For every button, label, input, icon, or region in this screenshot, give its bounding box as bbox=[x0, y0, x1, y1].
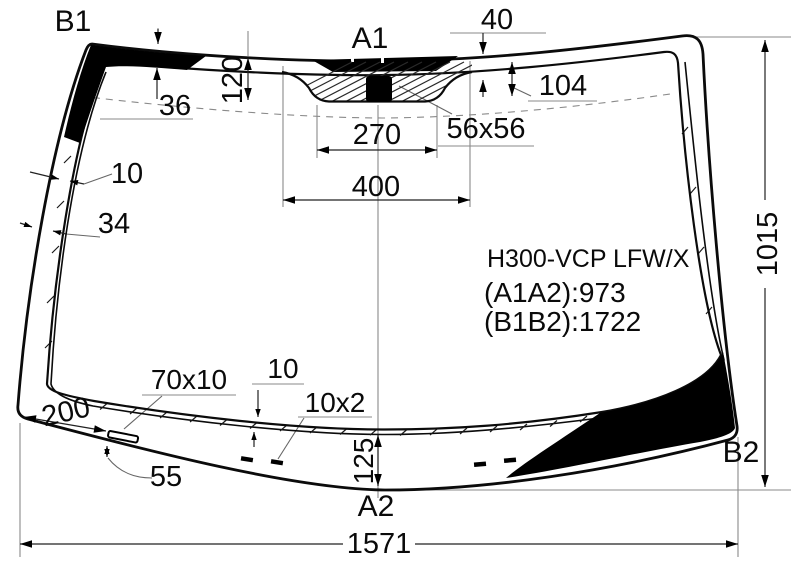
label-b2: B2 bbox=[723, 436, 760, 469]
dimension-lines bbox=[20, 29, 765, 544]
dim-34-arrow-1 bbox=[20, 223, 32, 227]
b1b2-distance-text: (B1B2):1722 bbox=[484, 306, 641, 337]
dim-10-left-text: 10 bbox=[111, 158, 143, 190]
dim-55-text: 55 bbox=[150, 461, 182, 493]
dim-40-text: 40 bbox=[481, 4, 513, 36]
dim-1571-text: 1571 bbox=[347, 528, 412, 560]
model-code-text: H300-VCP LFW/X bbox=[487, 245, 690, 273]
band-notch-2 bbox=[381, 57, 384, 63]
dim-400-text: 400 bbox=[352, 171, 400, 203]
clip-mark-4 bbox=[504, 457, 516, 463]
clip-mark-3 bbox=[474, 461, 486, 467]
construction-lines bbox=[20, 28, 791, 557]
dim-10x2-text: 10x2 bbox=[305, 387, 366, 418]
glass-inner-edge bbox=[47, 52, 721, 430]
diagram-canvas: B1 A1 A2 B2 40 104 120 36 270 400 56x56 … bbox=[0, 0, 799, 575]
band-notch-1 bbox=[351, 56, 354, 62]
clip-mark-2 bbox=[271, 459, 284, 465]
dim-10-left-arrow-1 bbox=[30, 172, 59, 179]
label-a1: A1 bbox=[352, 22, 389, 55]
clip-mark-1 bbox=[241, 456, 254, 462]
dim-10-bottom-text: 10 bbox=[267, 353, 298, 384]
leader-55 bbox=[108, 458, 152, 478]
dim-120-text: 120 bbox=[217, 56, 249, 104]
leader-104 bbox=[512, 87, 531, 96]
label-a2: A2 bbox=[358, 490, 395, 523]
dim-34-text: 34 bbox=[98, 208, 130, 240]
dim-1015-text: 1015 bbox=[752, 212, 784, 277]
dim-36-text: 36 bbox=[159, 90, 191, 122]
dim-270-text: 270 bbox=[353, 119, 401, 151]
windshield-dimension-diagram: B1 A1 A2 B2 40 104 120 36 270 400 56x56 … bbox=[0, 0, 799, 575]
label-b1: B1 bbox=[55, 5, 92, 38]
text-labels: B1 A1 A2 B2 40 104 120 36 270 400 56x56 … bbox=[39, 4, 784, 560]
sensor-square bbox=[366, 76, 392, 102]
dim-104-text: 104 bbox=[539, 70, 587, 102]
dim-125-text: 125 bbox=[348, 438, 379, 485]
a1a2-distance-text: (A1A2):973 bbox=[484, 277, 626, 308]
dim-56x56-text: 56x56 bbox=[446, 113, 525, 145]
leader-10-left bbox=[84, 174, 112, 184]
b2-corner-black bbox=[506, 352, 735, 478]
leader-34 bbox=[66, 234, 100, 237]
dim-70x10-text: 70x10 bbox=[151, 364, 227, 395]
